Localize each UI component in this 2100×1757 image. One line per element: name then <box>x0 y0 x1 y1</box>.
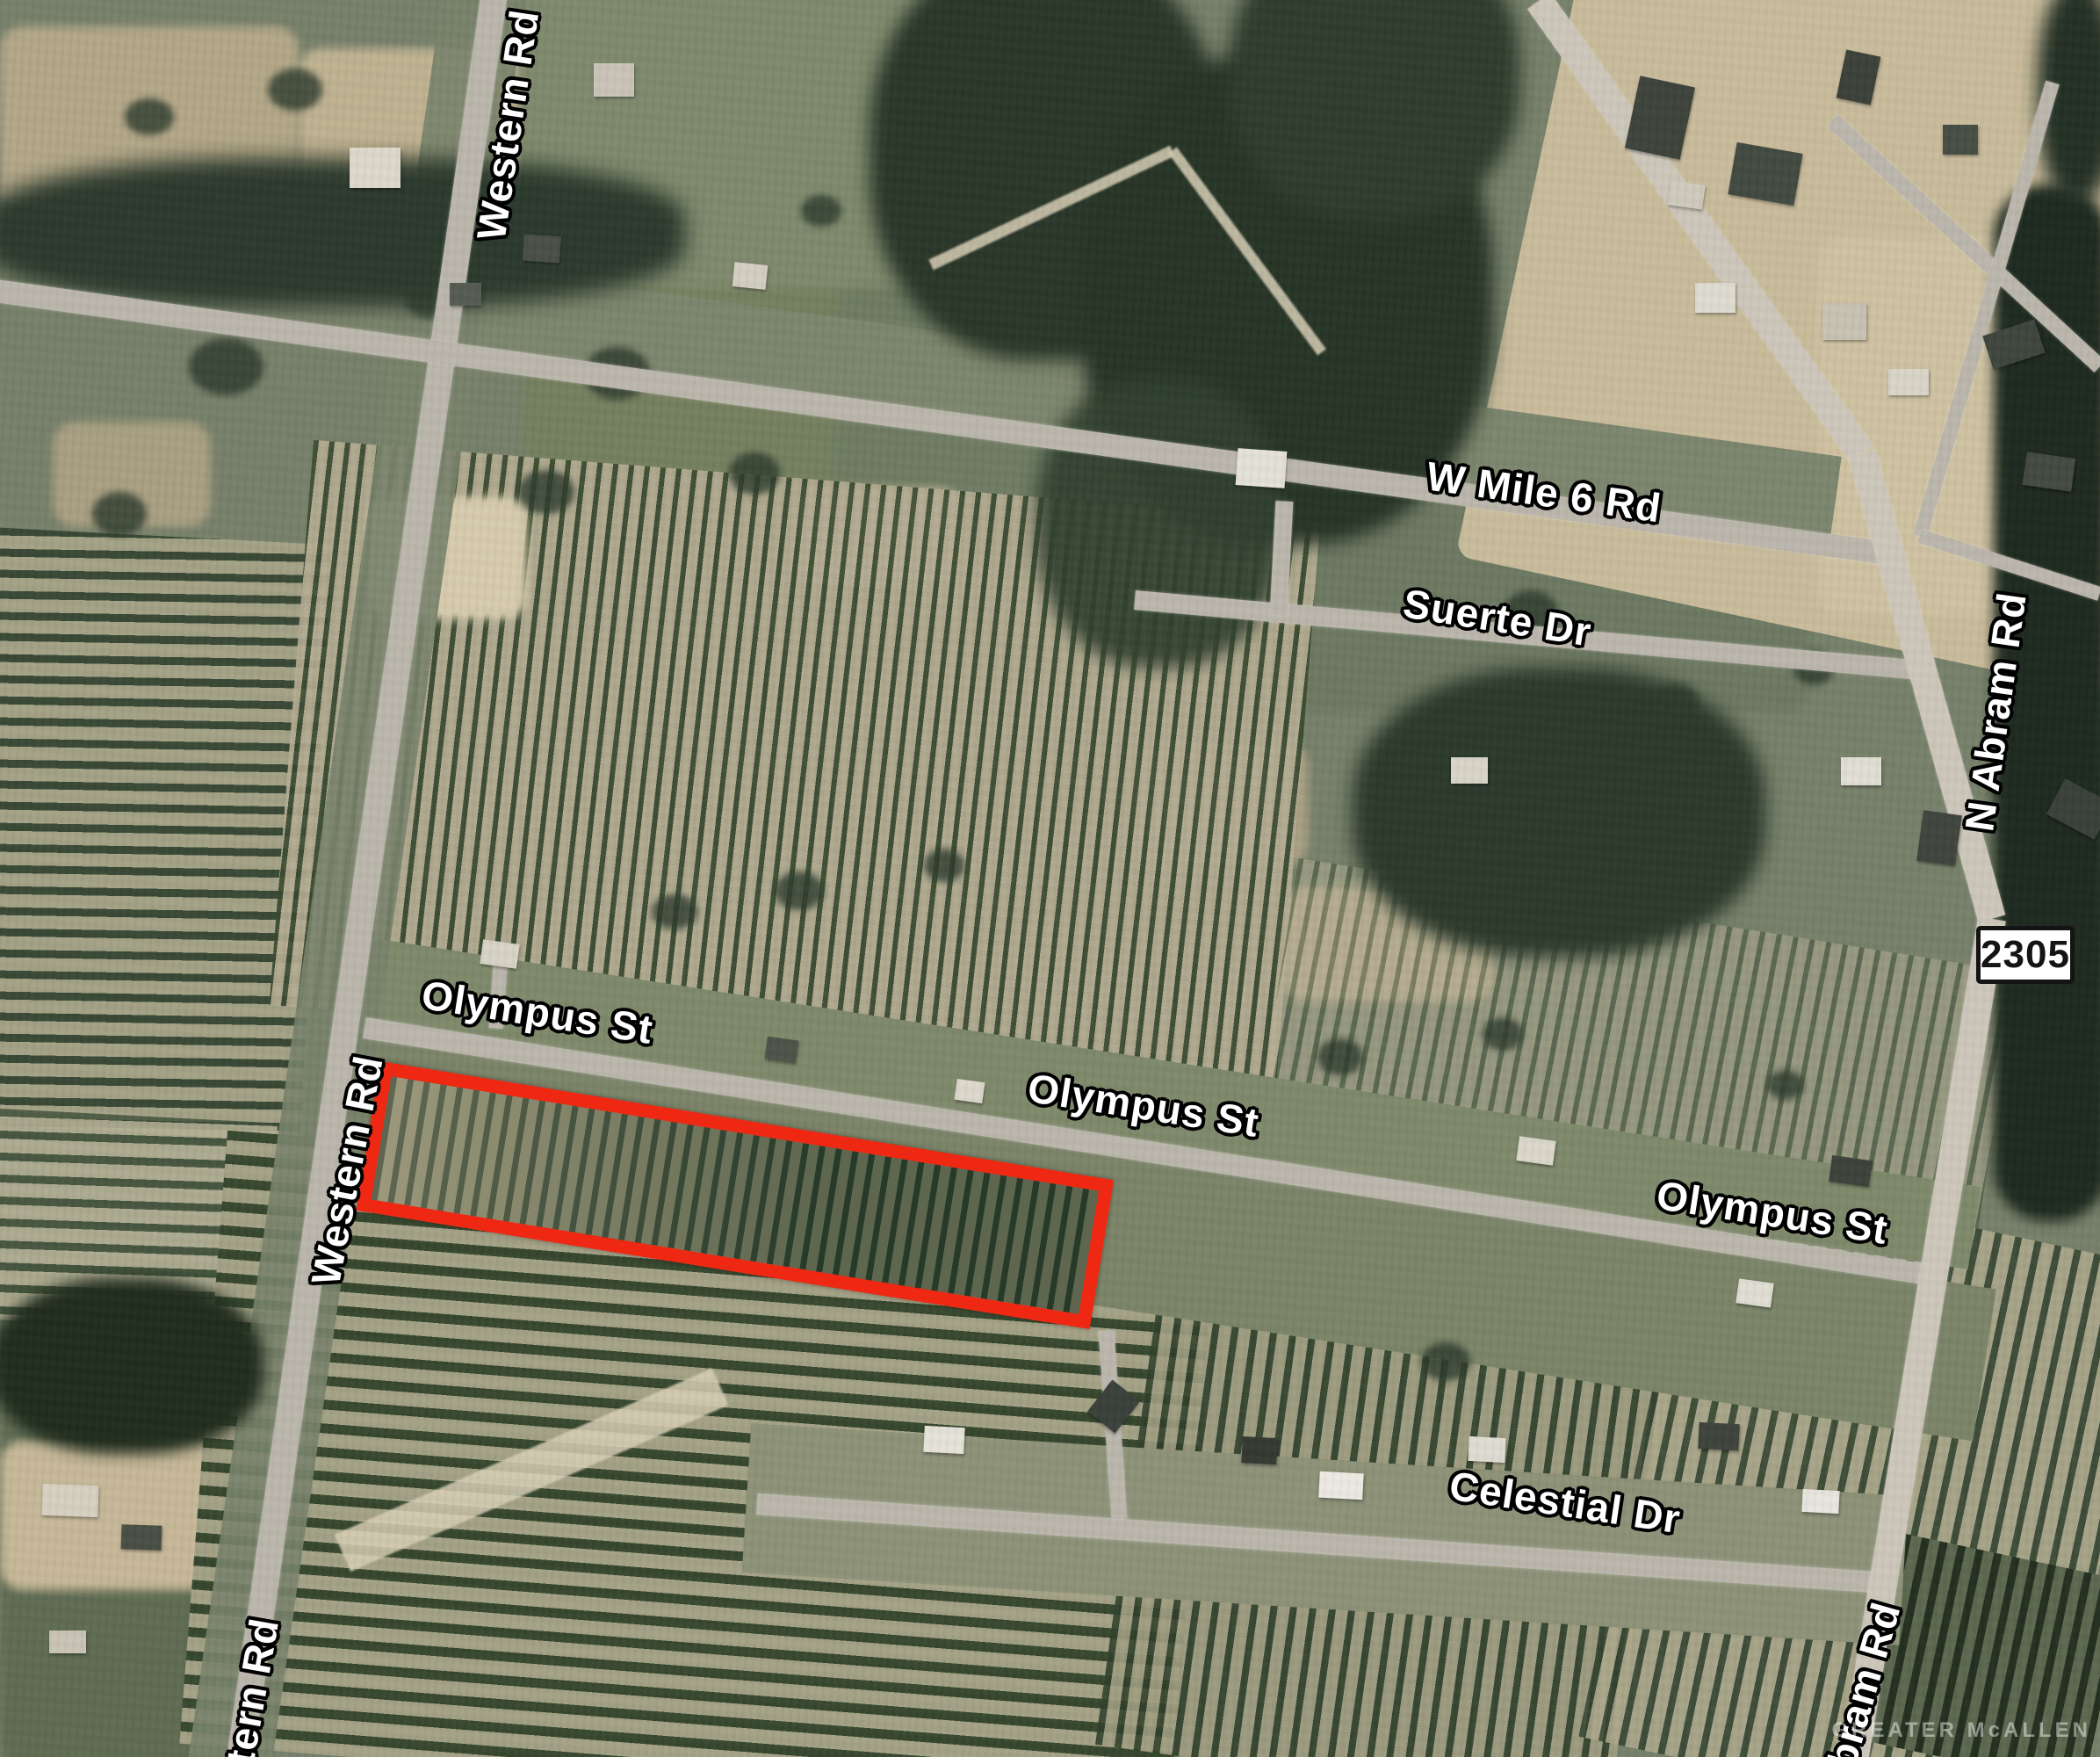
building <box>49 1630 86 1653</box>
woods <box>1353 668 1765 958</box>
tree <box>652 894 697 929</box>
woods <box>1036 378 1282 668</box>
building <box>1468 1436 1505 1463</box>
tree <box>1433 824 1484 864</box>
building <box>1451 757 1488 784</box>
building <box>1728 142 1802 206</box>
building <box>350 148 401 188</box>
building <box>121 1524 162 1551</box>
tree <box>268 69 322 111</box>
tree <box>1421 1342 1470 1381</box>
tree <box>92 492 147 536</box>
building <box>732 262 769 290</box>
building <box>1516 1136 1555 1166</box>
tree <box>729 452 780 495</box>
tree <box>125 98 174 135</box>
building <box>1698 1422 1740 1450</box>
tree <box>801 195 841 227</box>
route-badge-2305: 2305 <box>1976 926 2075 984</box>
building <box>1318 1471 1364 1500</box>
building <box>1841 757 1881 785</box>
watermark: GREATER McALLEN <box>1831 1718 2091 1743</box>
tree <box>775 871 824 910</box>
building <box>1801 1489 1839 1514</box>
building <box>1667 180 1706 209</box>
building <box>450 283 481 306</box>
building <box>923 1426 965 1454</box>
building <box>764 1037 798 1064</box>
building <box>1736 1278 1774 1307</box>
tree <box>189 338 263 395</box>
building <box>1241 1436 1278 1464</box>
building <box>954 1079 985 1103</box>
building <box>480 939 519 969</box>
building <box>2023 452 2076 491</box>
building <box>1236 448 1288 488</box>
woods <box>0 1278 263 1454</box>
building <box>594 63 634 97</box>
building <box>1943 125 1978 155</box>
tree <box>518 470 574 514</box>
building <box>1822 303 1866 340</box>
tree <box>1483 1017 1523 1051</box>
building <box>1829 1155 1873 1187</box>
satellite-map-canvas: Western Rd W Mile 6 Rd Suerte Dr N Abram… <box>0 0 2100 1757</box>
building <box>41 1484 98 1517</box>
building <box>1695 283 1736 313</box>
building <box>1888 369 1929 395</box>
tree <box>1317 1038 1363 1075</box>
tree <box>924 849 964 882</box>
tree <box>1767 1070 1804 1100</box>
building <box>1916 810 1962 866</box>
woods <box>0 158 685 307</box>
tree <box>1653 683 1699 722</box>
building <box>523 235 561 264</box>
